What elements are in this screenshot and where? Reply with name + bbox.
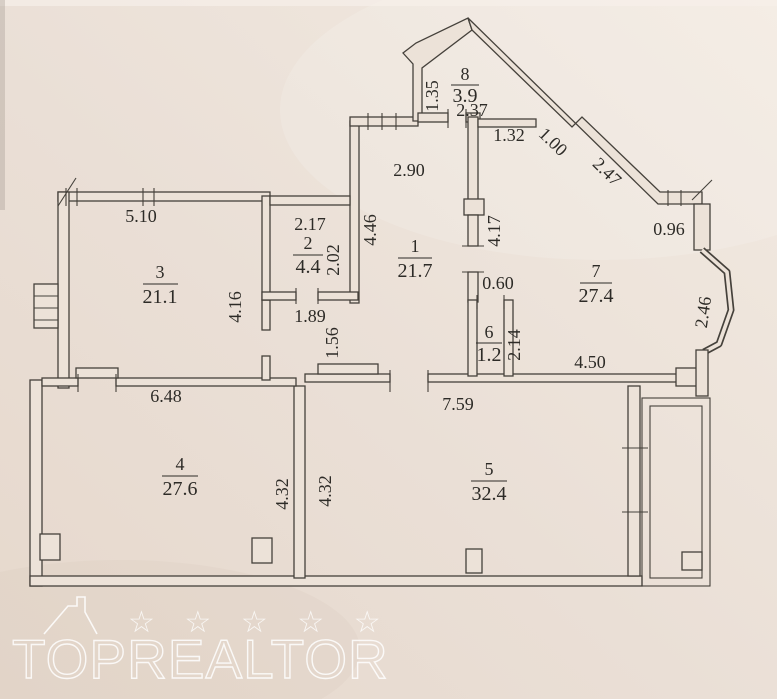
pillar [40, 534, 60, 560]
wall [294, 386, 305, 578]
room-7-number: 7 [592, 261, 601, 281]
room-4-number: 4 [176, 454, 185, 474]
dim-5-10: 5.10 [125, 206, 157, 226]
room-2-area: 4.4 [296, 256, 321, 278]
wall [468, 215, 478, 246]
room-5-area: 32.4 [472, 483, 507, 505]
wall [262, 356, 270, 380]
room-1-number: 1 [411, 236, 420, 256]
dim-4-50: 4.50 [574, 352, 606, 372]
dim-2-17: 2.17 [294, 214, 326, 234]
floor-plan-photo: 1 21.7 2 4.4 3 21.1 4 27.6 5 32.4 6 1.2 [0, 0, 777, 699]
dim-6-48: 6.48 [150, 386, 182, 406]
wall [694, 204, 710, 250]
wall [468, 117, 478, 201]
wall [350, 121, 359, 303]
paper-edge-left [0, 0, 5, 210]
dim-1-35: 1.35 [422, 80, 442, 112]
dim-7-59: 7.59 [442, 394, 474, 414]
dim-2-90: 2.90 [393, 160, 425, 180]
room-1-area: 21.7 [398, 260, 433, 282]
room-3-area: 21.1 [143, 286, 178, 308]
room-2-number: 2 [304, 233, 313, 253]
room-8-number: 8 [461, 64, 470, 84]
wall [58, 192, 270, 201]
dim-1-89: 1.89 [294, 306, 326, 326]
wall [696, 350, 708, 396]
room-6-area: 1.2 [477, 344, 502, 366]
wall-detail [34, 284, 58, 328]
wall [262, 300, 270, 330]
wall [30, 576, 642, 586]
dim-2-14: 2.14 [504, 329, 524, 361]
dim-2-37: 2.37 [456, 100, 488, 120]
pillar [252, 538, 272, 563]
room-6-number: 6 [485, 322, 494, 342]
wall [305, 374, 390, 382]
dim-1-56: 1.56 [322, 327, 342, 359]
dim-4-32-left: 4.32 [272, 478, 292, 510]
wall [418, 113, 448, 122]
room-4-area: 27.6 [163, 478, 198, 500]
pillar [682, 552, 702, 570]
room-5-number: 5 [485, 459, 494, 479]
room-3-number: 3 [156, 262, 165, 282]
wall [58, 192, 69, 388]
dim-4-46: 4.46 [360, 214, 380, 246]
wall [428, 374, 678, 382]
wall [318, 292, 358, 300]
pillar [464, 199, 484, 215]
wall [42, 378, 78, 386]
pillar [466, 549, 482, 573]
wall [628, 386, 640, 576]
room-7-area: 27.4 [579, 285, 614, 307]
dim-2-02: 2.02 [323, 244, 343, 276]
watermark-brand: TOPREALTOR [12, 628, 389, 690]
dim-1-32: 1.32 [493, 125, 525, 145]
door-threshold [318, 364, 378, 374]
floor-plan-svg: 1 21.7 2 4.4 3 21.1 4 27.6 5 32.4 6 1.2 [0, 0, 777, 699]
dim-0-60: 0.60 [482, 273, 514, 293]
paper-edge-top [0, 0, 777, 6]
door-threshold [76, 368, 118, 378]
dim-0-96: 0.96 [653, 219, 685, 239]
dim-4-32-right: 4.32 [315, 475, 335, 507]
wall [262, 196, 270, 300]
wall [270, 196, 350, 205]
dim-4-17: 4.17 [484, 215, 504, 247]
wall [350, 117, 418, 126]
dim-4-16: 4.16 [225, 291, 245, 323]
wall [262, 292, 296, 300]
